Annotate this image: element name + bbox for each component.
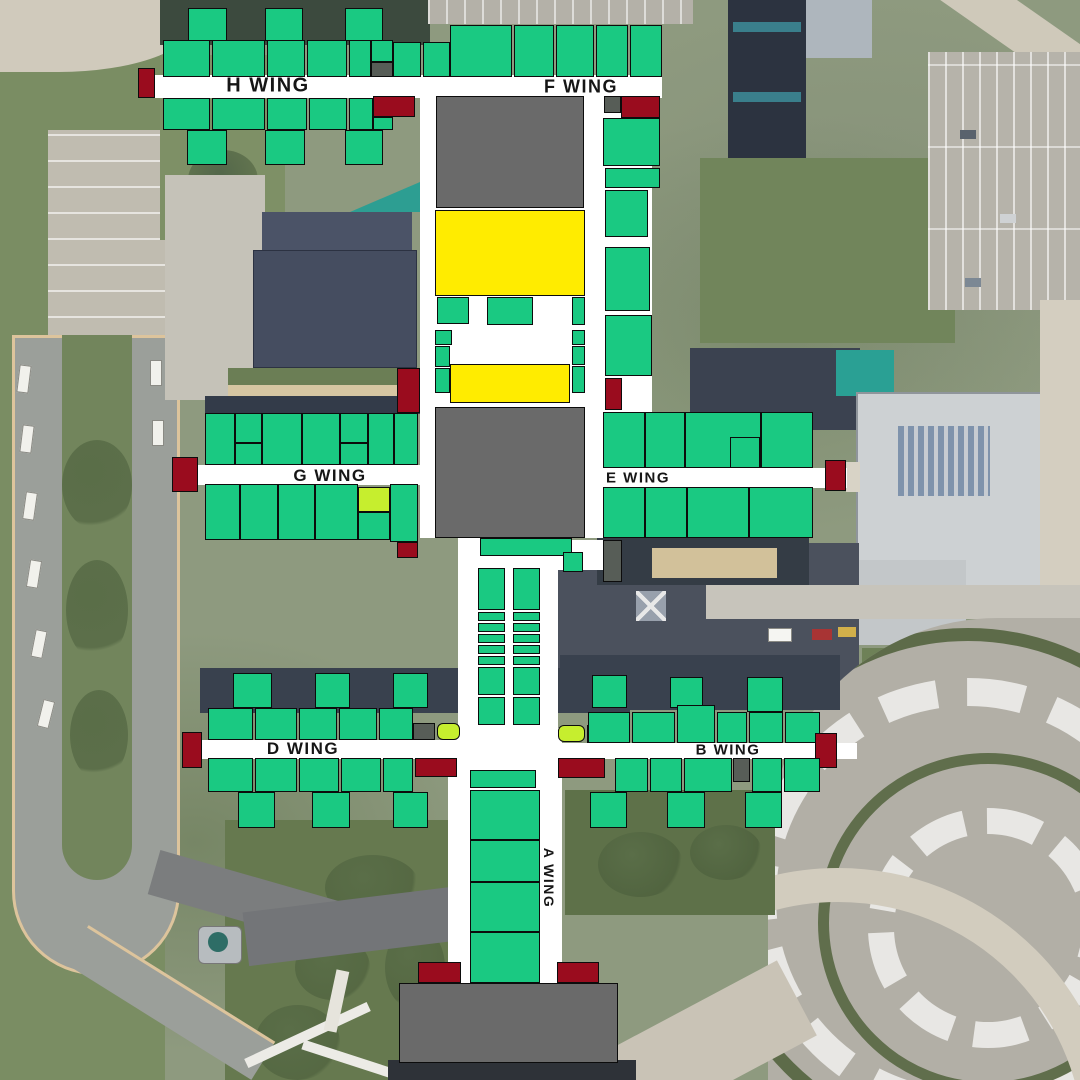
room-g (345, 130, 383, 165)
room-g (645, 412, 685, 468)
room-g (603, 412, 645, 468)
room-g (265, 8, 303, 41)
room-g (187, 130, 227, 165)
room-g (650, 758, 682, 792)
room-g (684, 758, 732, 792)
room-g (749, 712, 783, 743)
room-g (278, 484, 315, 540)
room-g (368, 413, 394, 465)
room-g (312, 792, 350, 828)
room-g (572, 346, 585, 365)
room-g (730, 437, 760, 468)
room-g (358, 512, 390, 540)
room-g (747, 677, 783, 712)
room-g (478, 568, 505, 610)
room-g (307, 40, 347, 77)
room-m (605, 378, 622, 410)
room-y (450, 364, 570, 403)
room-g (349, 40, 371, 77)
corridor (458, 538, 558, 728)
room-d (371, 62, 393, 77)
room-g (596, 25, 628, 77)
room-n (399, 983, 618, 1063)
room-m (825, 460, 846, 491)
room-g (205, 413, 235, 465)
campus-map: H WINGF WINGG WINGE WINGD WINGB WINGA WI… (0, 0, 1080, 1080)
room-g (605, 168, 660, 188)
room-g (480, 538, 572, 556)
room-d (603, 540, 622, 582)
room-m (621, 96, 660, 118)
room-l (558, 725, 585, 742)
room-g (315, 484, 358, 540)
room-g (478, 623, 505, 632)
room-m (397, 368, 420, 413)
room-g (752, 758, 782, 792)
room-g (784, 758, 820, 792)
room-g (592, 675, 627, 708)
room-g (233, 673, 272, 708)
room-g (341, 758, 381, 792)
room-g (371, 40, 393, 62)
room-g (212, 98, 265, 130)
room-g (513, 623, 540, 632)
room-d (604, 96, 621, 113)
room-g (470, 790, 540, 840)
wing-label-d-wing: D WING (267, 739, 339, 759)
room-m (138, 68, 155, 98)
room-g (513, 667, 540, 695)
room-g (588, 712, 630, 743)
room-l (358, 487, 390, 512)
room-g (717, 712, 747, 743)
room-g (470, 932, 540, 983)
room-g (299, 758, 339, 792)
room-g (423, 42, 450, 77)
room-g (478, 612, 505, 621)
room-m (557, 962, 599, 983)
room-g (188, 8, 227, 41)
room-g (393, 42, 421, 77)
wing-label-b-wing: B WING (696, 742, 761, 759)
room-g (513, 568, 540, 610)
room-g (435, 346, 450, 367)
room-g (677, 705, 715, 743)
room-m (418, 962, 461, 983)
room-g (379, 708, 413, 740)
room-g (208, 708, 253, 740)
room-g (603, 118, 660, 166)
room-m (558, 758, 605, 778)
room-g (470, 882, 540, 932)
room-g (470, 770, 536, 788)
room-g (487, 297, 533, 325)
room-g (205, 484, 240, 540)
room-g (605, 190, 648, 237)
room-g (615, 758, 648, 792)
room-g (670, 677, 703, 708)
room-g (667, 792, 705, 828)
room-g (267, 98, 307, 130)
room-g (208, 758, 253, 792)
room-g (299, 708, 337, 740)
room-g (761, 412, 813, 468)
room-g (513, 634, 540, 643)
room-d (413, 723, 435, 740)
room-g (390, 484, 418, 542)
room-g (478, 656, 505, 665)
room-d (733, 758, 750, 782)
room-g (478, 634, 505, 643)
room-g (435, 368, 450, 393)
room-g (513, 612, 540, 621)
room-g (345, 8, 383, 41)
room-g (513, 645, 540, 654)
room-g (478, 697, 505, 725)
room-g (572, 366, 585, 393)
room-g (373, 117, 393, 130)
room-g (603, 487, 645, 538)
room-g (349, 98, 373, 130)
room-g (240, 484, 278, 540)
room-g (163, 98, 210, 130)
room-g (687, 487, 749, 538)
room-g (262, 413, 302, 465)
wing-label-h-wing: H WING (226, 75, 309, 98)
room-g (470, 840, 540, 882)
room-g (163, 40, 210, 77)
room-g (212, 40, 265, 77)
room-g (605, 315, 652, 376)
room-g (590, 792, 627, 828)
room-g (605, 247, 650, 311)
room-g (632, 712, 675, 743)
room-n (436, 96, 584, 208)
room-m (172, 457, 198, 492)
room-g (572, 297, 585, 325)
room-g (383, 758, 413, 792)
wing-label-g-wing: G WING (293, 466, 366, 486)
wing-label-a-wing: A WING (541, 848, 557, 909)
room-g (315, 673, 350, 708)
room-m (373, 96, 415, 117)
room-g (340, 413, 368, 443)
room-g (393, 792, 428, 828)
room-g (645, 487, 687, 538)
room-g (478, 667, 505, 695)
room-m (182, 732, 202, 768)
room-g (437, 297, 469, 324)
room-l (437, 723, 460, 740)
room-g (513, 656, 540, 665)
room-g (478, 645, 505, 654)
room-g (339, 708, 377, 740)
room-g (340, 443, 368, 465)
room-g (513, 697, 540, 725)
room-g (556, 25, 594, 77)
room-g (255, 708, 297, 740)
room-g (255, 758, 297, 792)
room-g (749, 487, 813, 538)
room-g (563, 552, 583, 572)
room-g (572, 330, 585, 345)
room-m (415, 758, 457, 777)
room-g (394, 413, 418, 465)
wing-label-e-wing: E WING (606, 470, 670, 487)
room-n (435, 407, 585, 538)
room-g (238, 792, 275, 828)
room-m (397, 542, 418, 558)
room-g (267, 40, 305, 77)
room-y (435, 210, 585, 296)
room-g (309, 98, 347, 130)
room-g (393, 673, 428, 708)
room-g (745, 792, 782, 828)
room-g (302, 413, 340, 465)
wing-label-f-wing: F WING (544, 77, 618, 98)
room-g (450, 25, 512, 77)
room-g (514, 25, 554, 77)
room-g (235, 413, 262, 443)
room-g (435, 330, 452, 345)
room-g (235, 443, 262, 465)
room-g (630, 25, 662, 77)
room-g (265, 130, 305, 165)
floor-plan-overlay: H WINGF WINGG WINGE WINGD WINGB WINGA WI… (0, 0, 1080, 1080)
